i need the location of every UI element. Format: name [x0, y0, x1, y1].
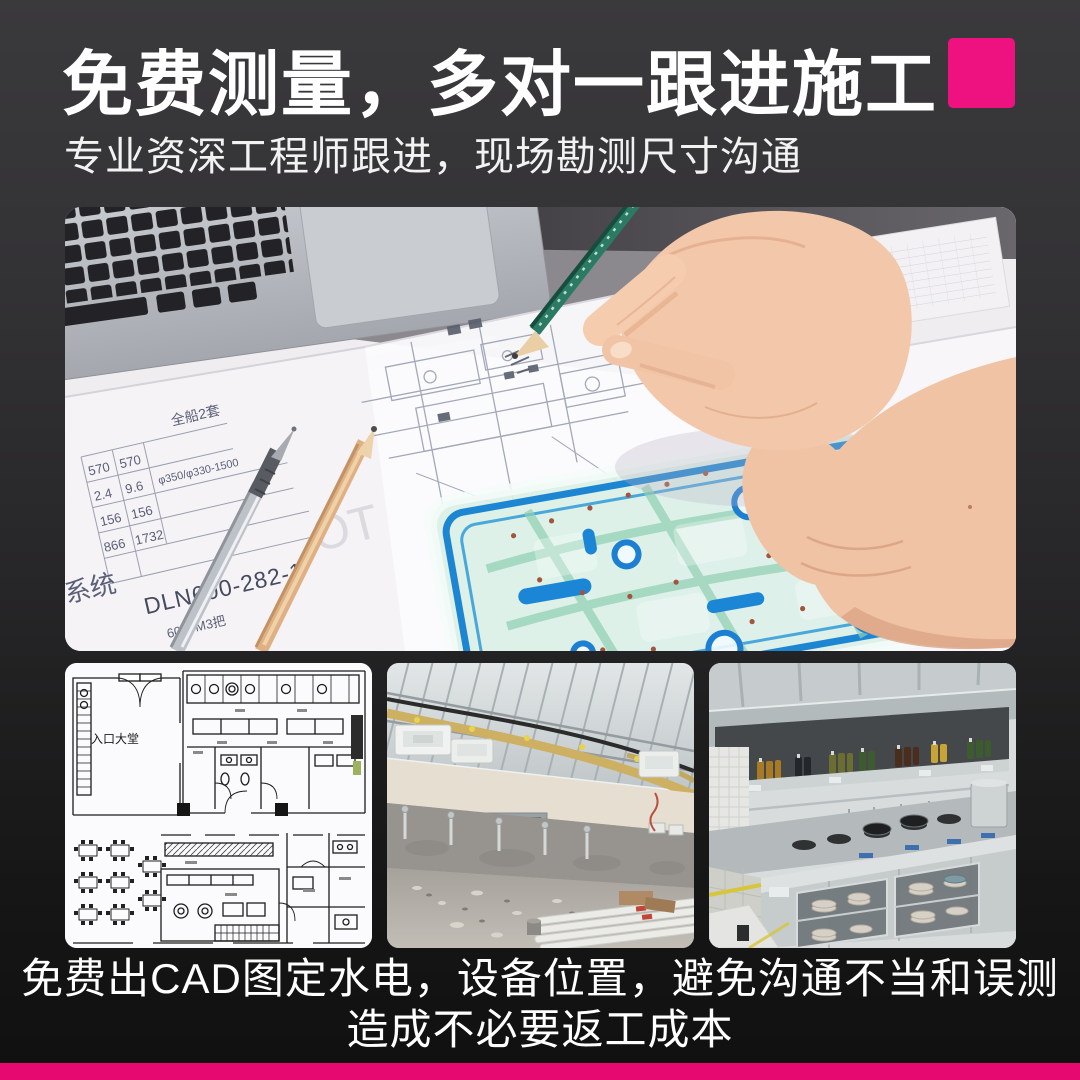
accent-square-decoration [948, 38, 1015, 108]
page-subtitle: 专业资深工程师跟进，现场勘测尺寸沟通 [64, 124, 802, 182]
hero-photo: OT 570 570 2.4 9.6 φ350/φ330-1500 156 15… [65, 207, 1016, 651]
footer-caption-line2: 造成不必要返工成本 [0, 1004, 1080, 1055]
hero-photo-illustration: OT 570 570 2.4 9.6 φ350/φ330-1500 156 15… [65, 207, 1016, 651]
footer-caption-line1: 免费出CAD图定水电，设备位置，避免沟通不当和误测 [0, 953, 1080, 1004]
thumbnail-construction-site [387, 663, 694, 948]
bottom-accent-bar [0, 1063, 1080, 1080]
commercial-kitchen-illustration [709, 663, 1016, 948]
page-title: 免费测量，多对一跟进施工 [62, 28, 938, 130]
floorplan-entrance-label: 入口大堂 [91, 732, 139, 746]
promo-poster: 免费测量，多对一跟进施工 专业资深工程师跟进，现场勘测尺寸沟通 [0, 0, 1080, 1080]
cad-floorplan-illustration: 入口大堂 [65, 663, 372, 948]
thumbnail-commercial-kitchen [709, 663, 1016, 948]
footer-caption: 免费出CAD图定水电，设备位置，避免沟通不当和误测 造成不必要返工成本 [0, 953, 1080, 1055]
thumbnail-cad-floorplan: 入口大堂 [65, 663, 372, 948]
gallery-row: 入口大堂 [65, 663, 1016, 948]
construction-site-illustration [387, 663, 694, 948]
